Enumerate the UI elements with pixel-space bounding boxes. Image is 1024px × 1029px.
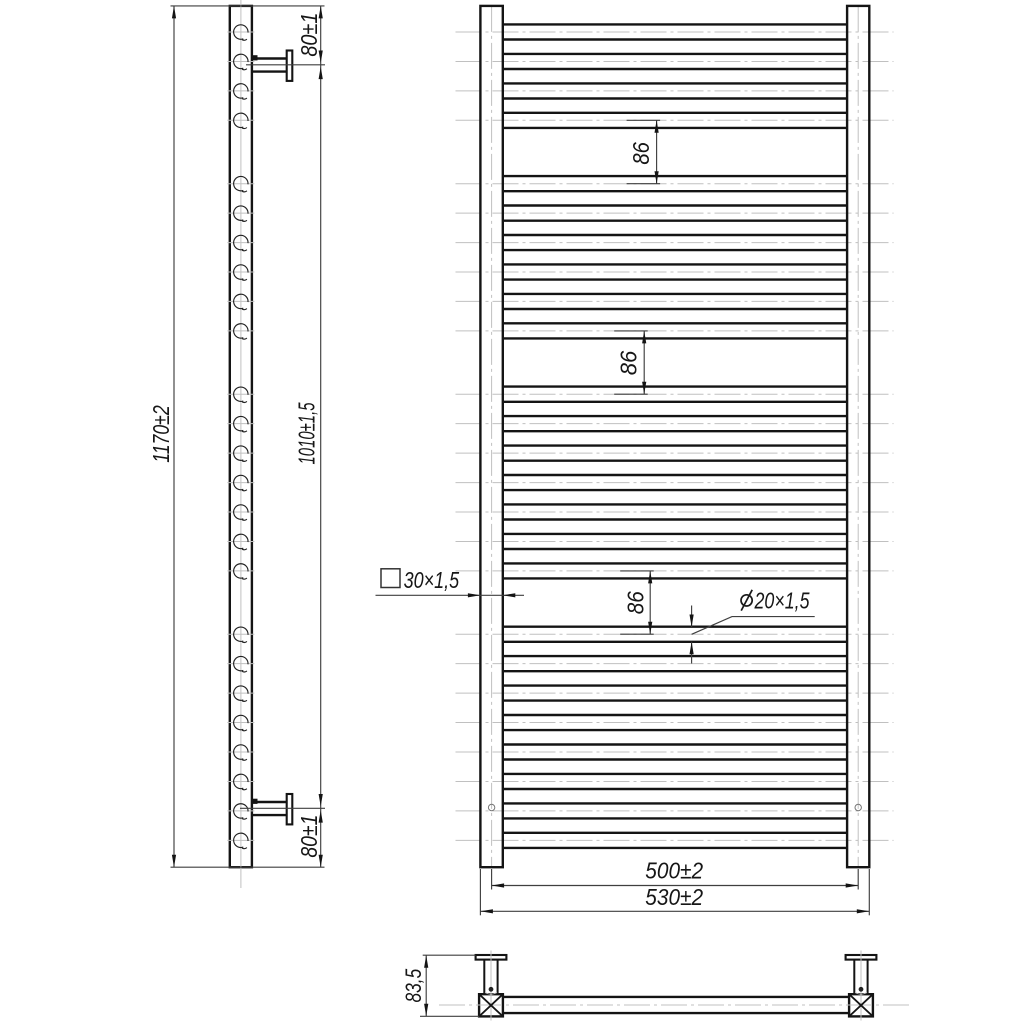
svg-text:86: 86 xyxy=(616,351,642,376)
svg-text:80±1: 80±1 xyxy=(296,13,322,57)
svg-text:86: 86 xyxy=(623,591,649,614)
svg-text:80±1: 80±1 xyxy=(296,815,322,858)
svg-text:20×1,5: 20×1,5 xyxy=(754,587,810,613)
svg-text:500±2: 500±2 xyxy=(645,857,703,883)
svg-text:86: 86 xyxy=(628,142,654,165)
svg-text:30×1,5: 30×1,5 xyxy=(404,567,460,593)
svg-text:530±2: 530±2 xyxy=(645,884,703,910)
svg-text:83,5: 83,5 xyxy=(401,968,426,1002)
svg-text:1010±1,5: 1010±1,5 xyxy=(293,402,319,464)
svg-text:1170±2: 1170±2 xyxy=(148,405,174,463)
